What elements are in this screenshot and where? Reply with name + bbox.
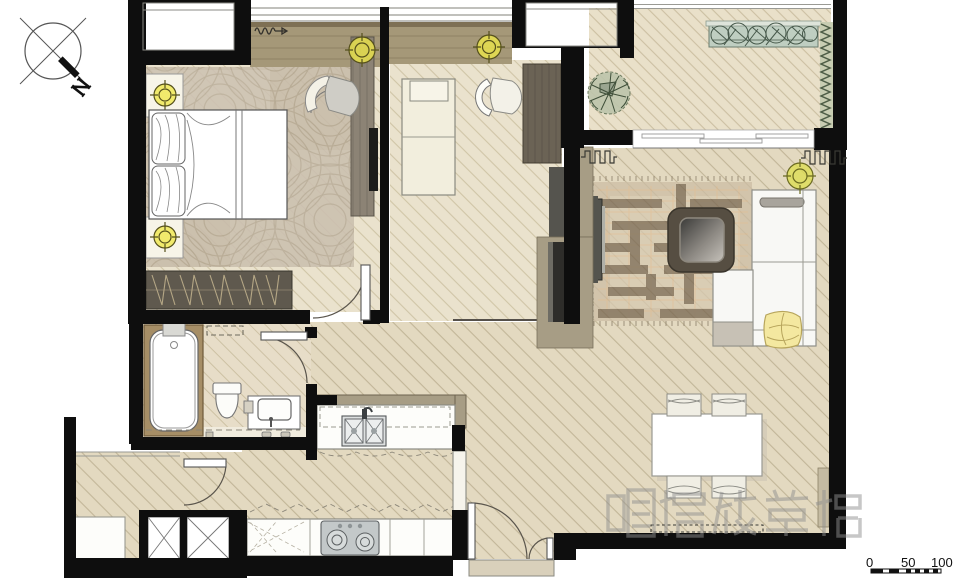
svg-text:0: 0 <box>866 555 873 570</box>
svg-text:50: 50 <box>901 555 915 570</box>
svg-text:100: 100 <box>931 555 953 570</box>
